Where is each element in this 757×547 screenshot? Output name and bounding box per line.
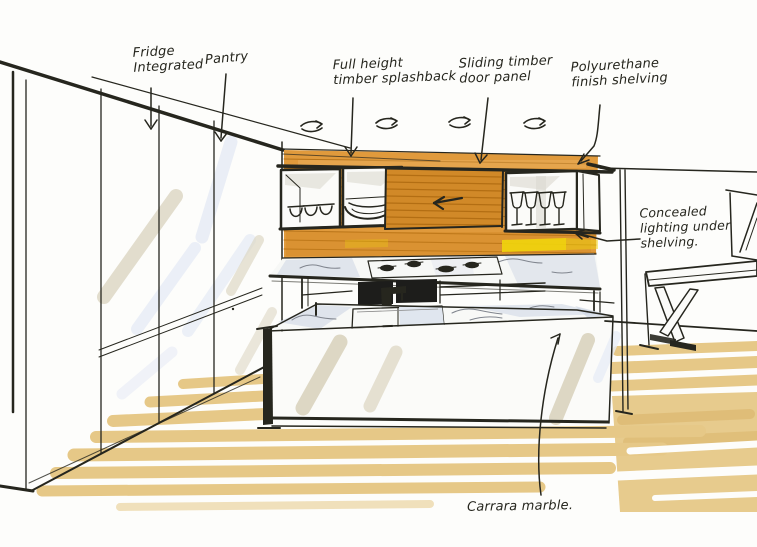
- ceiling-marks: [301, 117, 545, 132]
- annotation-sliding-door: Sliding timber door panel: [458, 53, 553, 87]
- island-corner-post: [263, 328, 273, 425]
- annotation-lighting: Concealed lighting under shelving.: [639, 203, 731, 250]
- ceiling-mark-icon: [449, 117, 470, 128]
- sliding-door-panel: [385, 167, 503, 229]
- annotation-splashback: Full height timber splashback: [333, 54, 457, 89]
- kitchen-sketch-canvas: Fridge Integrated Pantry Full height tim…: [0, 0, 757, 547]
- annotation-marble: Carrara marble.: [467, 498, 573, 515]
- dining-table: [640, 261, 757, 351]
- annotation-fridge-integrated: Fridge Integrated: [132, 42, 204, 76]
- ceiling-mark-icon: [376, 118, 397, 129]
- cabinet-side-panel: [577, 171, 600, 231]
- ceiling-mark-icon: [301, 121, 322, 132]
- annotation-shelving: Polyurethane finish shelving: [570, 55, 668, 91]
- wall-frame-sketch: [726, 190, 757, 260]
- upper-cabinet-right: [505, 164, 614, 237]
- island-bench: [232, 303, 616, 428]
- ceiling-mark-icon: [524, 118, 545, 129]
